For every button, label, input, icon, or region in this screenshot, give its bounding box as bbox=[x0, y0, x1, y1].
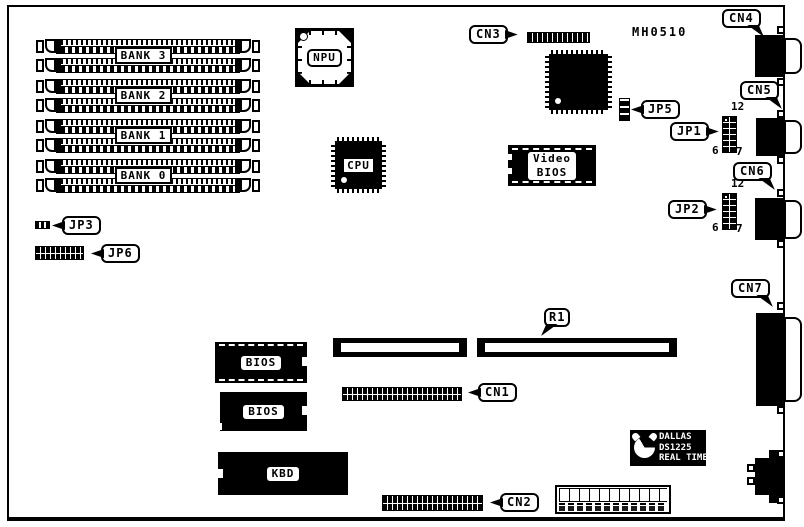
simm-latch bbox=[45, 79, 56, 93]
kbd-chip: KBD bbox=[218, 452, 348, 495]
edge-mark bbox=[777, 189, 785, 197]
header-gap bbox=[36, 253, 83, 254]
simm-latch bbox=[45, 119, 56, 133]
jp2-header bbox=[722, 193, 737, 230]
jp3-callout: JP3 bbox=[62, 216, 101, 235]
simm-latch bbox=[45, 138, 56, 152]
cn4-callout: CN4 bbox=[722, 9, 761, 28]
npu-socket: NPU bbox=[295, 28, 354, 87]
bank-2-label: BANK 2 bbox=[115, 87, 172, 104]
rtc-brand: DALLAS bbox=[659, 432, 708, 443]
simm-latch bbox=[45, 178, 56, 192]
pin1-marker bbox=[724, 195, 728, 199]
pin1-dot bbox=[299, 32, 308, 41]
simm-clip bbox=[252, 160, 260, 173]
simm-latch bbox=[45, 98, 56, 112]
simm-latch bbox=[240, 159, 251, 173]
pin1-marker bbox=[724, 118, 728, 122]
chip-pins bbox=[512, 181, 592, 183]
cn6-callout: CN6 bbox=[733, 162, 772, 181]
cn5-callout: CN5 bbox=[740, 81, 779, 100]
power-connector bbox=[755, 458, 785, 495]
socket-corner bbox=[298, 72, 310, 84]
chip-pins bbox=[219, 344, 303, 346]
cn1-header bbox=[342, 387, 462, 401]
video-bios-line2: BIOS bbox=[533, 166, 571, 180]
edge-mark bbox=[777, 450, 785, 458]
simm-end bbox=[235, 179, 239, 192]
motherboard-diagram: BANK 3 BANK 2 BANK 1 BANK 0 NPU CPU Vide… bbox=[0, 0, 804, 527]
cn4-callout-text: CN4 bbox=[729, 11, 754, 25]
rtc-chip: DALLAS DS1225 REAL TIME bbox=[630, 430, 706, 466]
chip-mark bbox=[220, 423, 222, 430]
simm-pins bbox=[61, 186, 235, 192]
jp1-pin12-label: 12 bbox=[731, 100, 744, 113]
pin1-dot bbox=[341, 177, 347, 183]
jp2-callout: JP2 bbox=[668, 200, 707, 219]
edge-mark bbox=[777, 406, 785, 414]
cn3-callout: CN3 bbox=[469, 25, 508, 44]
video-bios-label: Video BIOS bbox=[528, 152, 576, 180]
simm-clip bbox=[36, 80, 44, 93]
power-pin-tab bbox=[747, 464, 755, 472]
simm-latch bbox=[240, 79, 251, 93]
edge-mark bbox=[777, 240, 785, 248]
simm-clip bbox=[252, 40, 260, 53]
terminal-block-connector bbox=[555, 485, 671, 514]
jp6-callout: JP6 bbox=[101, 244, 140, 263]
cpu-label: CPU bbox=[344, 159, 373, 172]
header-gap bbox=[383, 503, 482, 504]
jp3-callout-text: JP3 bbox=[69, 218, 94, 232]
simm-clip bbox=[36, 40, 44, 53]
jp2-callout-text: JP2 bbox=[675, 202, 700, 216]
r1-callout: R1 bbox=[544, 308, 570, 327]
cn2-callout: CN2 bbox=[500, 493, 539, 512]
simm-pins bbox=[61, 160, 235, 165]
cn6-connector bbox=[755, 198, 784, 240]
rtc-text: DALLAS DS1225 REAL TIME bbox=[659, 432, 708, 464]
rtc-model: DS1225 bbox=[659, 443, 708, 454]
simm-pins bbox=[61, 80, 235, 85]
jp1-pin7-label: 7 bbox=[736, 145, 743, 158]
slot-r1 bbox=[477, 338, 677, 357]
chip-notch bbox=[508, 154, 512, 160]
power-pin-tab bbox=[747, 477, 755, 485]
jp1-pin6-label: 6 bbox=[712, 144, 719, 157]
chipset-body bbox=[549, 54, 608, 110]
cn2-header bbox=[382, 495, 483, 511]
slot-left bbox=[333, 338, 467, 357]
simm-pins bbox=[61, 120, 235, 125]
edge-mark bbox=[777, 26, 785, 34]
simm-clip bbox=[36, 59, 44, 72]
cn6-port bbox=[784, 200, 802, 239]
cn5-port bbox=[784, 120, 802, 154]
simm-clip bbox=[252, 59, 260, 72]
simm-end bbox=[235, 160, 239, 173]
simm-pins bbox=[61, 40, 235, 45]
jp2-pin6-label: 6 bbox=[712, 221, 719, 234]
cpu-chip: CPU bbox=[331, 137, 386, 193]
npu-label: NPU bbox=[307, 49, 342, 67]
video-bios-chip: Video BIOS bbox=[508, 145, 596, 186]
bank-0-label: BANK 0 bbox=[115, 167, 172, 184]
socket-corner bbox=[339, 31, 351, 43]
simm-latch bbox=[240, 178, 251, 192]
cn1-callout-text: CN1 bbox=[485, 385, 510, 399]
jp1-header bbox=[722, 116, 737, 153]
simm-clip bbox=[252, 179, 260, 192]
jp1-callout: JP1 bbox=[670, 122, 709, 141]
jp5-jumper bbox=[619, 98, 630, 121]
simm-latch bbox=[240, 119, 251, 133]
header-gap bbox=[343, 394, 461, 395]
slot-inner bbox=[485, 343, 669, 352]
rtc-type: REAL TIME bbox=[659, 453, 708, 464]
cn7-callout-text: CN7 bbox=[738, 281, 763, 295]
bank-3-label: BANK 3 bbox=[115, 47, 172, 64]
slot-inner bbox=[341, 343, 459, 352]
cn1-callout: CN1 bbox=[478, 383, 517, 402]
chip-notch bbox=[302, 357, 307, 366]
pin1-dot bbox=[555, 98, 561, 104]
chip-pins bbox=[512, 148, 592, 150]
jp5-callout: JP5 bbox=[641, 100, 680, 119]
simm-clip bbox=[252, 99, 260, 112]
r1-callout-text: R1 bbox=[549, 310, 565, 324]
bios-chip-2: BIOS bbox=[220, 392, 307, 431]
simm-pins bbox=[61, 66, 235, 72]
cn2-callout-text: CN2 bbox=[507, 495, 532, 509]
simm-clip bbox=[252, 80, 260, 93]
jp6-header bbox=[35, 246, 84, 260]
cn7-port bbox=[784, 317, 802, 402]
cn4-connector bbox=[755, 35, 784, 77]
simm-clip bbox=[252, 120, 260, 133]
cn3-callout-text: CN3 bbox=[476, 27, 501, 41]
terminal-clips bbox=[559, 506, 667, 511]
chip-notch bbox=[218, 469, 223, 478]
kbd-label: KBD bbox=[267, 467, 300, 481]
jp1-callout-text: JP1 bbox=[677, 124, 702, 138]
chip-pins bbox=[219, 379, 303, 381]
video-bios-line1: Video bbox=[533, 152, 571, 166]
simm-clip bbox=[36, 139, 44, 152]
simm-pins bbox=[61, 146, 235, 152]
cn4-port bbox=[784, 38, 802, 74]
cpu-body: CPU bbox=[335, 141, 382, 189]
simm-clip bbox=[36, 160, 44, 173]
simm-end bbox=[235, 80, 239, 93]
simm-latch bbox=[240, 39, 251, 53]
cn5-connector bbox=[756, 118, 784, 156]
simm-latch bbox=[240, 138, 251, 152]
chip-notch bbox=[508, 168, 512, 174]
bios-2-label: BIOS bbox=[243, 405, 284, 419]
simm-end bbox=[235, 99, 239, 112]
cn3-header bbox=[527, 32, 590, 43]
edge-mark bbox=[777, 496, 785, 504]
bank-1-label: BANK 1 bbox=[115, 127, 172, 144]
simm-pins bbox=[61, 106, 235, 112]
simm-latch bbox=[240, 98, 251, 112]
cn6-callout-text: CN6 bbox=[740, 164, 765, 178]
socket-corner bbox=[339, 72, 351, 84]
simm-clip bbox=[36, 99, 44, 112]
jp3-jumper bbox=[35, 221, 50, 229]
simm-latch bbox=[45, 39, 56, 53]
cn7-connector bbox=[756, 313, 784, 406]
simm-clip bbox=[252, 139, 260, 152]
simm-end bbox=[235, 139, 239, 152]
chipset-chip bbox=[545, 50, 612, 114]
bios-chip-1: BIOS bbox=[215, 342, 307, 383]
simm-clip bbox=[36, 179, 44, 192]
chip-notch bbox=[302, 406, 307, 415]
simm-latch bbox=[45, 58, 56, 72]
cn5-callout-text: CN5 bbox=[747, 83, 772, 97]
terminal-row bbox=[559, 488, 667, 502]
edge-mark bbox=[777, 302, 785, 310]
simm-end bbox=[235, 40, 239, 53]
jp5-callout-text: JP5 bbox=[648, 102, 673, 116]
edge-mark bbox=[777, 156, 785, 164]
simm-end bbox=[235, 59, 239, 72]
jp6-callout-text: JP6 bbox=[108, 246, 133, 260]
cn7-callout: CN7 bbox=[731, 279, 770, 298]
part-number: MH0510 bbox=[632, 25, 687, 39]
simm-latch bbox=[45, 159, 56, 173]
bios-1-label: BIOS bbox=[241, 356, 282, 370]
simm-latch bbox=[240, 58, 251, 72]
terminal-dashes bbox=[559, 503, 667, 505]
jp2-pin7-label: 7 bbox=[736, 222, 743, 235]
edge-mark bbox=[777, 110, 785, 118]
simm-end bbox=[235, 120, 239, 133]
simm-clip bbox=[36, 120, 44, 133]
